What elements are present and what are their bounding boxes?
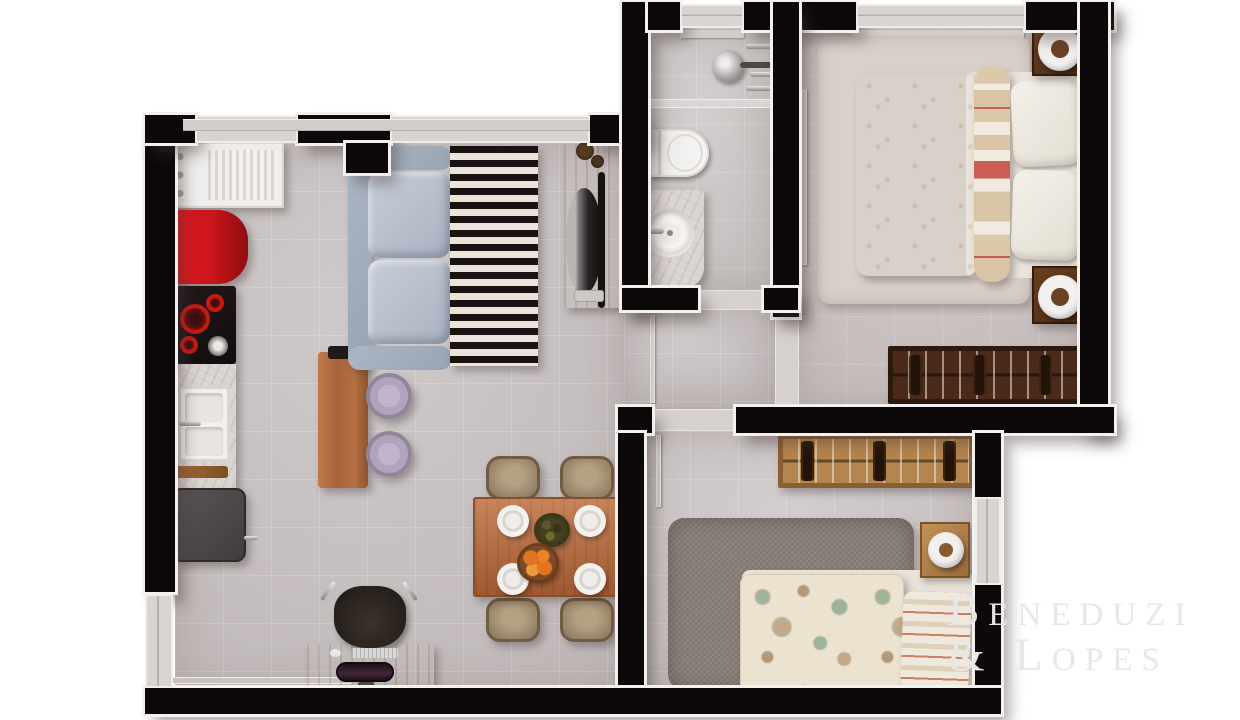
plate-4 [574, 563, 606, 595]
master-pillow-1 [1010, 78, 1082, 167]
master-pillow-2 [1010, 169, 1081, 261]
shower-arm [740, 62, 774, 68]
bedroom2-wardrobe [778, 434, 974, 488]
bedroom2-door-opening [652, 409, 736, 431]
watermark-line2: & Lopes [948, 633, 1194, 678]
bathroom-top-wall-a [648, 2, 680, 30]
window-pier [346, 143, 388, 173]
towel-bar-3 [746, 86, 774, 91]
bedroom2-left-wall [618, 433, 644, 688]
watermark-line1: Beneduzi [948, 588, 1194, 633]
master-lamp-1-center [1051, 40, 1069, 58]
bedroom2-lamp-center [939, 543, 953, 557]
cooktop-knob [208, 336, 228, 356]
master-hanger-2 [975, 355, 984, 395]
sink-basin-1 [185, 393, 223, 422]
laundry-unit [172, 488, 246, 562]
bedroom2-nightstand [920, 522, 970, 578]
master-sliding-door-leaf [799, 90, 807, 265]
plate-1 [497, 505, 529, 537]
bathroom-top-wall-b [744, 2, 856, 30]
tv-stand-tray [574, 290, 604, 302]
toilet [645, 129, 709, 177]
master-wardrobe [888, 346, 1086, 404]
desk-keyboard [352, 648, 398, 658]
master-duvet [856, 74, 978, 276]
bedroom2-window [975, 497, 1001, 585]
bathroom-window-sill [680, 30, 744, 38]
bedroom2-hanger-2 [875, 441, 884, 481]
towel-bar-2 [750, 72, 774, 77]
sink-faucet [179, 421, 201, 426]
bedroom2-lamp [928, 532, 964, 568]
dining-chair-3 [486, 598, 540, 642]
toilet-seat [667, 134, 703, 172]
middle-wall-segment-b [736, 407, 1114, 433]
refrigerator [170, 210, 248, 284]
dining-chair-4 [560, 598, 614, 642]
left-exterior-wall [145, 115, 175, 592]
desk-monitor [336, 662, 394, 682]
tv-screen [598, 172, 605, 308]
living-bathroom-wall [622, 2, 648, 310]
burner-large [180, 304, 210, 334]
bathroom-door-opening [698, 290, 764, 310]
bar-stool-2 [366, 431, 412, 477]
bedroom2-hanger-1 [803, 441, 812, 481]
bar-counter [318, 352, 368, 488]
fruit-bowl [517, 543, 559, 583]
cabinet-knobs [174, 152, 186, 198]
master-lamp-2-center [1051, 288, 1069, 306]
master-duvet-fold [974, 66, 1010, 282]
master-lamp-2 [1038, 275, 1082, 319]
tv-stand-decor-2 [591, 155, 604, 168]
watermark: Beneduzi & Lopes [948, 588, 1194, 678]
plate-2 [574, 505, 606, 537]
drying-board [176, 466, 228, 478]
bottom-exterior-wall [145, 688, 1001, 714]
dining-chair-2 [560, 456, 614, 500]
bathroom-master-wall [773, 2, 799, 317]
toilet-tank-line [658, 131, 661, 175]
exterior-window-sill [183, 119, 590, 131]
bathroom-window [680, 4, 744, 28]
bar-stool-1 [366, 373, 412, 419]
master-hanger-1 [911, 355, 920, 395]
bedroom2-hanger-3 [945, 441, 954, 481]
towel-bar-1 [746, 44, 774, 49]
desk-mouse [330, 649, 341, 657]
bathroom-vanity [642, 190, 704, 288]
bedroom2-duvet [740, 574, 904, 694]
bathroom-bottom-wall-a [622, 288, 698, 310]
basin-drain [667, 230, 673, 236]
shower-glass-partition [648, 100, 773, 107]
master-door-opening [775, 317, 799, 407]
middle-wall-segment-a [618, 407, 652, 433]
sofa-cushion-1 [368, 172, 450, 258]
dining-chair-1 [486, 456, 540, 500]
living-rug [450, 146, 538, 366]
floor-plan: Beneduzi & Lopes [0, 0, 1240, 720]
master-right-wall [1080, 2, 1108, 432]
tv-speaker [566, 188, 602, 294]
laundry-hose [244, 536, 258, 540]
kitchen-counter [170, 364, 236, 488]
cabinet-louver-top [208, 150, 278, 200]
balcony-window [145, 594, 173, 688]
sink-basin-2 [185, 427, 223, 456]
hallway-floor [624, 305, 775, 409]
master-hanger-3 [1041, 355, 1050, 395]
hallway-door-leaf [650, 315, 655, 403]
burner-small-1 [206, 294, 224, 312]
master-nightstand-2 [1032, 266, 1084, 324]
cooktop [170, 286, 236, 364]
burner-small-2 [180, 336, 198, 354]
desk-chair [334, 586, 406, 648]
sofa-armrest-bottom [348, 346, 452, 370]
kitchen-sink [178, 386, 230, 462]
master-window [856, 4, 1026, 28]
bathroom-bottom-wall-b [764, 288, 798, 310]
kitchen-cabinet [170, 142, 284, 208]
berry-bowl [534, 513, 570, 547]
master-lamp-1 [1038, 27, 1082, 71]
sofa-cushion-2 [368, 260, 450, 344]
bedroom2-door-leaf [656, 435, 661, 507]
